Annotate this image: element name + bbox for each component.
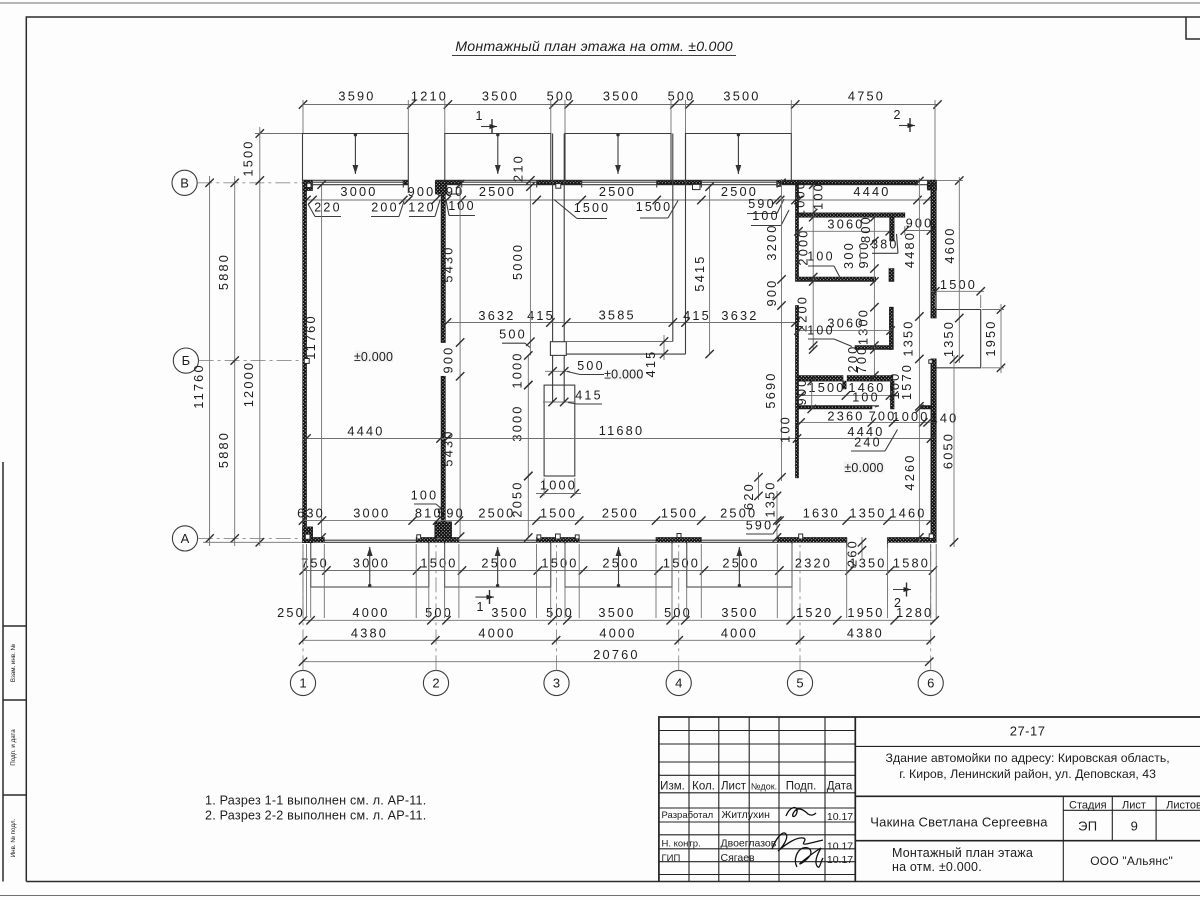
svg-text:2500: 2500 (478, 506, 515, 521)
svg-text:415: 415 (527, 308, 555, 323)
svg-text:500: 500 (499, 327, 527, 342)
svg-text:4: 4 (675, 676, 682, 691)
svg-text:1500: 1500 (636, 200, 673, 214)
svg-text:6: 6 (927, 676, 934, 691)
svg-text:Дата: Дата (827, 781, 853, 793)
svg-text:1280: 1280 (896, 605, 933, 620)
svg-text:5000: 5000 (510, 243, 525, 280)
svg-text:5690: 5690 (763, 371, 778, 408)
svg-text:3200: 3200 (764, 223, 779, 260)
svg-text:Кол.: Кол. (692, 781, 715, 793)
svg-text:100: 100 (752, 209, 779, 223)
svg-text:5: 5 (796, 676, 803, 691)
svg-text:Разработал: Разработал (662, 810, 714, 821)
svg-text:140: 140 (931, 411, 959, 426)
svg-text:100: 100 (852, 391, 879, 405)
svg-text:4000: 4000 (721, 626, 758, 641)
svg-text:1000: 1000 (792, 180, 807, 217)
svg-text:630: 630 (297, 506, 325, 521)
svg-text:1950: 1950 (847, 605, 884, 620)
svg-text:1350: 1350 (849, 506, 886, 521)
svg-text:415: 415 (575, 389, 602, 403)
svg-text:1: 1 (299, 676, 306, 691)
svg-text:220: 220 (314, 201, 341, 215)
svg-text:Здание автомойки по адресу: Ки: Здание автомойки по адресу: Кировская об… (886, 751, 1170, 765)
svg-text:10.17: 10.17 (827, 854, 853, 866)
svg-text:1: 1 (477, 600, 484, 614)
svg-text:1460: 1460 (889, 506, 926, 521)
svg-text:2500: 2500 (722, 556, 759, 571)
svg-text:100: 100 (411, 489, 438, 503)
svg-text:3000: 3000 (340, 184, 377, 199)
svg-text:2: 2 (894, 596, 901, 610)
svg-text:900: 900 (408, 184, 436, 199)
svg-text:2500: 2500 (720, 506, 757, 521)
svg-text:2500: 2500 (602, 556, 639, 571)
svg-text:1570: 1570 (899, 363, 914, 400)
svg-text:Листов: Листов (1166, 800, 1200, 812)
svg-text:500: 500 (664, 605, 692, 620)
svg-text:3500: 3500 (723, 89, 760, 104)
svg-text:300: 300 (841, 241, 856, 269)
svg-text:11680: 11680 (599, 423, 645, 438)
svg-text:±0.000: ±0.000 (844, 461, 883, 475)
svg-text:Двоеглазов: Двоеглазов (721, 838, 777, 850)
svg-text:1350: 1350 (763, 480, 778, 517)
svg-text:А: А (181, 531, 190, 546)
svg-text:900: 900 (764, 279, 779, 307)
svg-text:3000: 3000 (509, 404, 524, 441)
svg-text:11760: 11760 (191, 363, 206, 409)
svg-text:3585: 3585 (599, 308, 636, 323)
svg-text:Подп. и дата: Подп. и дата (10, 729, 17, 766)
svg-text:1500: 1500 (541, 556, 578, 571)
svg-text:1500: 1500 (574, 201, 611, 215)
svg-text:900: 900 (856, 241, 871, 269)
svg-text:2320: 2320 (795, 556, 832, 571)
svg-text:1. Разрез 1-1 выполнен см. л.: 1. Разрез 1-1 выполнен см. л. АР-11. (205, 794, 426, 808)
svg-text:Монтажный план этажа: Монтажный план этажа (892, 846, 1033, 860)
svg-text:Сягаев: Сягаев (721, 852, 756, 864)
svg-text:20760: 20760 (593, 647, 639, 662)
svg-text:100: 100 (777, 415, 792, 443)
svg-text:3500: 3500 (482, 89, 519, 104)
svg-text:ООО "Альянс": ООО "Альянс" (1090, 854, 1173, 868)
svg-text:240: 240 (854, 436, 881, 450)
svg-text:100: 100 (807, 324, 834, 338)
svg-text:100: 100 (807, 250, 834, 264)
svg-text:1500: 1500 (540, 506, 577, 521)
svg-text:210: 210 (511, 154, 526, 182)
svg-text:1950: 1950 (983, 319, 998, 356)
svg-text:900: 900 (794, 378, 809, 406)
svg-text:3590: 3590 (338, 89, 375, 104)
svg-text:415: 415 (643, 350, 658, 378)
svg-text:1520: 1520 (796, 605, 833, 620)
svg-text:5430: 5430 (441, 245, 456, 282)
svg-text:1500: 1500 (940, 277, 977, 292)
svg-text:1350: 1350 (941, 320, 956, 357)
svg-text:4000: 4000 (599, 626, 636, 641)
svg-text:900: 900 (441, 346, 456, 374)
svg-text:380: 380 (871, 238, 898, 252)
svg-text:5880: 5880 (216, 431, 231, 468)
svg-text:5880: 5880 (216, 253, 231, 290)
svg-text:3500: 3500 (603, 89, 640, 104)
svg-text:12000: 12000 (241, 361, 256, 407)
svg-text:500: 500 (577, 359, 604, 373)
svg-text:6050: 6050 (941, 432, 956, 469)
svg-text:Чакина Светлана Сергеевна: Чакина Светлана Сергеевна (870, 815, 1048, 830)
svg-text:4380: 4380 (847, 626, 884, 641)
svg-text:Лист: Лист (1122, 800, 1146, 812)
svg-text:Лист: Лист (721, 781, 747, 793)
svg-text:100: 100 (448, 199, 475, 213)
svg-text:Б: Б (182, 353, 191, 368)
svg-text:10.17: 10.17 (827, 841, 853, 853)
svg-text:4440: 4440 (347, 424, 384, 439)
svg-text:В: В (180, 175, 189, 190)
svg-text:4440: 4440 (853, 184, 890, 199)
svg-text:1630: 1630 (803, 506, 840, 521)
svg-text:±0.000: ±0.000 (354, 350, 393, 364)
svg-text:1580: 1580 (893, 556, 930, 571)
svg-text:3000: 3000 (353, 556, 390, 571)
svg-text:2500: 2500 (602, 506, 639, 521)
svg-text:9: 9 (1131, 819, 1138, 834)
svg-text:1500: 1500 (420, 556, 457, 571)
svg-text:200: 200 (371, 201, 398, 215)
svg-text:4750: 4750 (848, 89, 885, 104)
svg-text:3: 3 (553, 676, 560, 691)
svg-text:г. Киров, Ленинский район, ул.: г. Киров, Ленинский район, ул. Деповская… (899, 767, 1156, 781)
svg-text:10.17: 10.17 (827, 811, 853, 823)
svg-text:4000: 4000 (478, 626, 515, 641)
svg-text:4260: 4260 (902, 453, 917, 490)
svg-text:2: 2 (432, 676, 439, 691)
svg-text:2500: 2500 (479, 184, 516, 199)
svg-text:Изм.: Изм. (660, 781, 685, 793)
svg-text:500: 500 (668, 89, 696, 104)
svg-text:1350: 1350 (849, 556, 886, 571)
svg-text:Н. контр.: Н. контр. (662, 839, 701, 850)
svg-text:100: 100 (810, 182, 825, 210)
svg-text:1500: 1500 (808, 380, 845, 395)
svg-text:3632: 3632 (721, 308, 758, 323)
svg-text:3000: 3000 (353, 506, 390, 521)
svg-text:1500: 1500 (663, 556, 700, 571)
svg-text:№док.: №док. (751, 782, 777, 792)
svg-text:5430: 5430 (441, 429, 456, 466)
svg-text:ГИП: ГИП (662, 853, 681, 864)
svg-text:1: 1 (476, 109, 483, 123)
svg-text:590: 590 (437, 506, 465, 521)
svg-text:1000: 1000 (892, 409, 929, 424)
svg-text:200: 200 (845, 345, 860, 373)
svg-text:2. Разрез 2-2 выполнен см. л.: 2. Разрез 2-2 выполнен см. л. АР-11. (205, 809, 426, 823)
svg-text:Стадия: Стадия (1069, 800, 1107, 812)
svg-text:на отм. ±0.000.: на отм. ±0.000. (892, 860, 982, 874)
svg-text:4480: 4480 (902, 231, 917, 268)
svg-text:Житлухин: Житлухин (722, 809, 771, 821)
svg-text:1000: 1000 (509, 351, 524, 388)
svg-text:2: 2 (894, 108, 901, 122)
svg-text:250: 250 (277, 605, 305, 620)
svg-text:415: 415 (683, 308, 711, 323)
svg-text:4600: 4600 (942, 226, 957, 263)
svg-text:11760: 11760 (303, 314, 318, 360)
svg-text:500: 500 (546, 605, 574, 620)
svg-text:2500: 2500 (599, 184, 636, 199)
svg-text:Инв. № подл.: Инв. № подл. (10, 818, 17, 857)
svg-text:Подп.: Подп. (786, 781, 817, 793)
svg-text:2360: 2360 (827, 409, 864, 424)
svg-text:1350: 1350 (901, 319, 916, 356)
svg-text:Монтажный план этажа на отм. ±: Монтажный план этажа на отм. ±0.000 (455, 39, 733, 55)
svg-text:120: 120 (408, 201, 435, 215)
svg-text:5415: 5415 (692, 254, 707, 291)
svg-text:3500: 3500 (598, 605, 635, 620)
svg-text:3500: 3500 (721, 605, 758, 620)
svg-text:750: 750 (301, 556, 329, 571)
svg-text:3632: 3632 (478, 308, 515, 323)
svg-text:2500: 2500 (481, 556, 518, 571)
svg-text:4000: 4000 (352, 605, 389, 620)
svg-text:1500: 1500 (240, 139, 255, 176)
svg-text:1210: 1210 (411, 89, 448, 104)
svg-text:3500: 3500 (491, 605, 528, 620)
svg-text:4380: 4380 (351, 626, 388, 641)
svg-text:27-17: 27-17 (1010, 724, 1046, 739)
svg-text:±0.000: ±0.000 (604, 368, 643, 382)
svg-text:ЭП: ЭП (1078, 819, 1097, 834)
svg-text:1000: 1000 (540, 478, 577, 493)
svg-text:Взам. инв. №: Взам. инв. № (10, 643, 17, 682)
svg-text:1500: 1500 (661, 506, 698, 521)
